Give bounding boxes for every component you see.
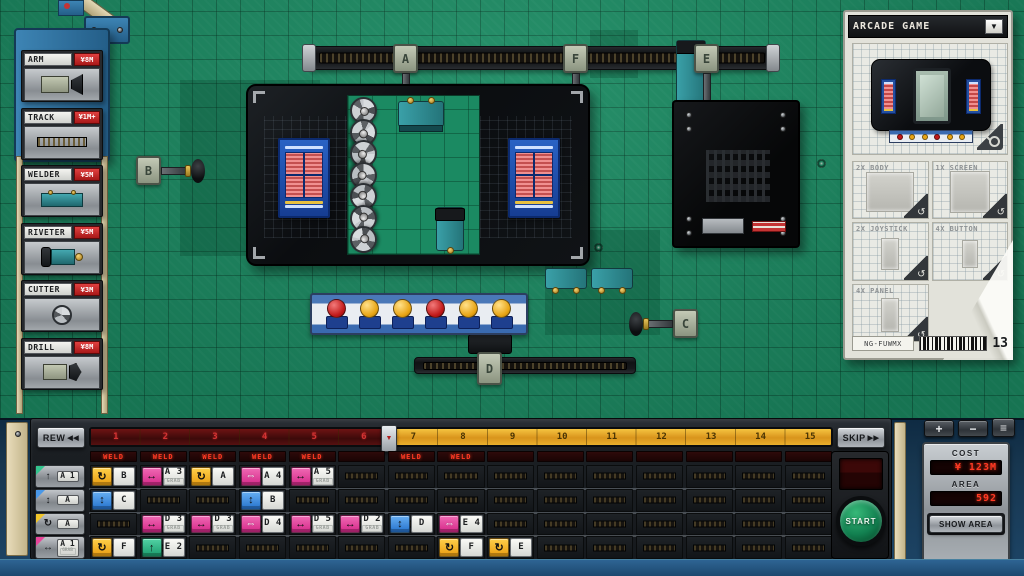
timeline-tick-15: 15 [805,432,816,442]
program-block-e2[interactable]: ↑E 2 [141,537,186,558]
program-cell-r1c1[interactable]: ↻B [90,465,137,488]
weld-indicator-row: WELDWELDWELDWELDWELDWELDWELD [89,451,833,462]
part-price-tag: ¥5M [74,226,100,239]
crane-light [64,3,70,9]
program-block-f[interactable]: ↻F [438,537,483,558]
start-label: START [845,517,876,526]
palette-item-header: RIVETER¥5M [24,226,100,239]
block-target-label: F [460,538,482,557]
cell-track-texture [345,497,378,504]
program-cell-r1c12[interactable] [636,465,683,488]
palette-item-welder[interactable]: WELDER¥5M [21,165,103,217]
node-d-label: D [477,352,502,385]
palette-item-header: DRILL¥8M [24,341,100,354]
program-cell-r4c15[interactable] [785,536,832,559]
start-module: START [831,451,889,559]
cell-track-texture [395,497,428,504]
cell-track-texture [296,544,329,551]
machine-node-b[interactable]: B [136,155,210,187]
block-target-label: E 4 [460,515,482,534]
program-cell-r1c11[interactable] [586,465,633,488]
program-cell-r4c4[interactable] [239,536,286,559]
cell-track-texture [544,544,577,551]
program-row-header-2[interactable]: ↕A [35,489,85,512]
weld-indicator-lit: WELD [388,451,435,462]
menu-icon: ≡ [1000,421,1007,435]
program-cell-r3c2[interactable]: ↔D 3GRAB [140,513,187,536]
part-price-tag: ¥8M [74,53,100,66]
product-dropdown-button[interactable]: ▼ [985,19,1003,34]
conveyor-track-bottom[interactable] [414,357,636,374]
magnifier-icon[interactable] [977,124,1003,150]
block-target-label: D 3GRAB [212,515,234,534]
program-block-e4[interactable]: ⇔E 4 [438,514,483,535]
program-cell-r4c8[interactable]: ↻F [437,536,484,559]
program-cell-r1c2[interactable]: ↔A 3GRAB [140,465,187,488]
program-block-f[interactable]: ↻F [91,537,136,558]
program-block-d[interactable]: ↕D [389,514,434,535]
program-cell-r4c13[interactable] [686,536,733,559]
program-cell-r2c2[interactable] [140,489,187,512]
program-row-header-3[interactable]: ↻A [35,513,85,536]
program-cell-r2c11[interactable] [586,489,633,512]
area-label: AREA [924,480,1008,489]
weld-indicator-lit: WELD [140,451,187,462]
welded-part-bar[interactable] [591,268,633,289]
cell-track-texture [544,520,577,527]
timeline-tick-7: 7 [411,432,416,442]
node-c-label: C [673,309,698,338]
product-count: 13 [992,336,1008,351]
program-block-d3[interactable]: ↔D 3GRAB [141,514,186,535]
arm-thumbnail [24,68,100,101]
cell-track-texture [196,544,229,551]
program-row-4: ↻F↑E 2↻F↻E [89,536,833,559]
block-target-label: A 4 [262,467,284,486]
program-cell-r3c12[interactable] [636,513,683,536]
cutter-thumbnail [24,298,100,331]
weld-indicator-slot [537,451,584,462]
program-cell-r2c13[interactable] [686,489,733,512]
node-f-label: F [563,44,588,73]
console-side-rail [894,422,906,562]
start-button[interactable]: START [836,496,886,546]
lift-action-icon: ↑ [142,538,162,557]
cell-track-texture [693,473,726,480]
part-name-label: CUTTER [24,283,72,296]
program-row-headers: ↑A 1↕A↻A↔A 1GRAB [35,465,85,559]
playhead-icon: ▼ [386,435,393,442]
status-led-display [839,458,883,490]
drill-thumbnail [24,356,100,389]
program-cell-r1c5[interactable]: ↔A 5GRAB [289,465,336,488]
cost-value: ¥ 123M [930,460,1002,475]
rewind-button[interactable]: REW ◀◀ [37,427,85,448]
program-cell-r2c4[interactable]: ↕B [239,489,286,512]
cell-track-texture [593,497,626,504]
machine-node-d[interactable]: D [477,350,503,388]
program-cell-r3c11[interactable] [586,513,633,536]
program-cell-r4c9[interactable]: ↻E [487,536,534,559]
track-end-cap [766,44,780,72]
menu-button[interactable]: ≡ [992,418,1015,437]
cell-track-texture [494,497,527,504]
timeline-tick-1: 1 [113,432,118,442]
program-cell-r2c14[interactable] [735,489,782,512]
block-target-label: D 5GRAB [312,515,334,534]
minus-icon: − [969,422,976,436]
program-cell-r3c15[interactable] [785,513,832,536]
machine-node-c[interactable]: C [624,308,698,340]
cell-track-texture [792,544,825,551]
button-cap [327,299,346,318]
part-requirement-label: 2X BODY [856,164,889,172]
zoom-in-button[interactable]: + [924,420,954,437]
program-cell-r2c3[interactable] [189,489,236,512]
program-cell-r1c7[interactable] [388,465,435,488]
cost-pod: + − ≡ COST ¥ 123M AREA 592 SHOW AREA [916,418,1016,570]
part-requirement-2[interactable]: 1X SCREEN↺ [932,161,1009,219]
skip-button[interactable]: SKIP ▶▶ [837,427,885,448]
grab-action-icon: ↔ [291,467,311,486]
program-cell-r1c14[interactable] [735,465,782,488]
skip-label: SKIP [843,433,866,443]
node-a-label: A [393,44,418,73]
grab-action-icon: ↔ [191,515,211,534]
swap-part-button[interactable]: ↺ [904,194,928,218]
cell-track-texture [494,520,527,527]
machine-warning-label [752,221,786,232]
program-row-3: ↔D 3GRAB↔D 3GRAB⇔D 4↔D 5GRAB↔D 2GRAB↕D⇔E… [89,513,833,536]
product-header: ARCADE GAME ▼ [848,15,1008,38]
timeline-tick-3: 3 [212,432,217,442]
swap-part-icon: ↺ [917,207,925,218]
palette-item-header: CUTTER¥3M [24,283,100,296]
program-block-a[interactable]: ↻A [190,466,235,487]
weld-indicator-lit: WELD [90,451,137,462]
move-action-icon: ⇔ [241,467,261,486]
game-screen: A F E B [0,0,1024,576]
program-cell-r3c5[interactable]: ↔D 5GRAB [289,513,336,536]
program-cell-r4c12[interactable] [636,536,683,559]
vertical-action-icon: ↕ [241,491,261,510]
weld-indicator-slot [338,451,385,462]
part-requirement-1[interactable]: 2X BODY↺ [852,161,929,219]
welder-thumbnail [24,183,100,216]
block-target-label: A [212,467,234,486]
program-cell-r3c10[interactable] [537,513,584,536]
block-target-label: C [113,491,135,510]
part-ghost-image [881,238,899,270]
program-block-d2[interactable]: ↔D 2GRAB [339,514,384,535]
button-cap [459,299,478,318]
program-cell-r1c9[interactable] [487,465,534,488]
part-ghost-image [881,298,899,332]
barcode [919,336,987,351]
program-block-a4[interactable]: ⇔A 4 [240,466,285,487]
program-cell-r2c5[interactable] [289,489,336,512]
weld-indicator-slot [735,451,782,462]
program-cell-r1c8[interactable] [437,465,484,488]
block-target-label: B [262,491,284,510]
cell-track-texture [593,520,626,527]
program-cell-r1c15[interactable] [785,465,832,488]
cell-track-texture [792,473,825,480]
vertical-action-icon: ↕ [92,491,112,510]
row-header-label: A 1 [57,471,79,481]
swap-part-button[interactable]: ↺ [904,256,928,280]
program-row-1: ↻B↔A 3GRAB↻A⇔A 4↔A 5GRAB [89,465,833,488]
grab-action-icon: ↔ [142,515,162,534]
rotate-action-icon: ↻ [191,467,211,486]
program-cell-r2c7[interactable] [388,489,435,512]
welded-part-bar[interactable] [545,268,587,289]
program-cell-r4c2[interactable]: ↑E 2 [140,536,187,559]
program-block-a5[interactable]: ↔A 5GRAB [290,466,335,487]
palette-item-header: ARM¥8M [24,53,100,66]
rewind-icon: ◀◀ [67,434,79,442]
program-block-b[interactable]: ↕B [240,490,285,511]
program-cell-r2c12[interactable] [636,489,683,512]
weld-indicator-lit: WELD [437,451,484,462]
blueprint-sheet-left [278,138,330,218]
block-target-label: D 3GRAB [163,515,185,534]
program-cell-r3c7[interactable]: ↕D [388,513,435,536]
program-cell-r4c10[interactable] [537,536,584,559]
cell-track-texture [494,473,527,480]
program-block-d5[interactable]: ↔D 5GRAB [290,514,335,535]
grab-sub-label: GRAB [213,525,233,532]
part-requirement-label: 2X JOYSTICK [856,225,908,233]
program-cell-r1c3[interactable]: ↻A [189,465,236,488]
palette-item-drill[interactable]: DRILL¥8M [21,338,103,390]
weld-indicator-lit: WELD [289,451,336,462]
program-cell-r2c8[interactable] [437,489,484,512]
button-cap [393,299,412,318]
program-cell-r1c13[interactable] [686,465,733,488]
weld-indicator-lit: WELD [189,451,236,462]
program-cell-r3c4[interactable]: ⇔D 4 [239,513,286,536]
welder-machine-center[interactable] [398,101,444,127]
cell-track-texture [792,520,825,527]
yellow-arcade-button[interactable] [391,299,415,329]
program-cell-r4c7[interactable] [388,536,435,559]
rotate-action-icon: ↻ [92,467,112,486]
program-block-c[interactable]: ↕C [91,490,136,511]
part-price-tag: ¥8M [74,341,100,354]
red-arcade-button[interactable] [325,299,349,329]
product-panel: ARCADE GAME ▼ 2X BODY↺1X SCREEN↺2X JOYST… [843,10,1013,360]
vent-grille [706,150,770,202]
part-name-label: WELDER [24,168,72,181]
block-target-label: B [113,467,135,486]
rotate-action-icon: ↻ [92,538,112,557]
part-ghost-image [962,240,978,268]
program-grid: ↻B↔A 3GRAB↻A⇔A 4↔A 5GRAB↕C↕B↔D 3GRAB↔D 3… [89,465,833,559]
program-cell-r1c10[interactable] [537,465,584,488]
program-cell-r3c9[interactable] [487,513,534,536]
blueprint-sheet-right [508,138,560,218]
part-name-label: DRILL [24,341,72,354]
grab-sub-label: GRAB [313,478,333,485]
timeline-tick-13: 13 [706,432,717,442]
weld-indicator-slot [636,451,683,462]
product-blueprint-image [871,59,991,131]
timeline-tick-6: 6 [361,432,366,442]
program-block-e[interactable]: ↻E [488,537,533,558]
cell-track-texture [147,497,180,504]
yellow-arcade-button[interactable] [490,299,514,329]
cutter-wheel-column[interactable] [350,97,380,253]
swap-part-icon: ↺ [917,269,925,280]
cost-label: COST [924,449,1008,458]
timeline-tick-5: 5 [311,432,316,442]
program-cell-r3c6[interactable]: ↔D 2GRAB [338,513,385,536]
timeline-tick-2: 2 [163,432,168,442]
block-target-label: F [113,538,135,557]
cell-track-texture [693,497,726,504]
part-requirement-label: 4X PANEL [856,287,894,295]
drill-machine-center[interactable] [436,207,464,251]
program-block-d3[interactable]: ↔D 3GRAB [190,514,235,535]
cell-track-texture [643,544,676,551]
palette-item-track[interactable]: TRACK¥1M+ [21,108,103,160]
palette-item-cutter[interactable]: CUTTER¥3M [21,280,103,332]
weld-indicator-slot [487,451,534,462]
riveter-thumbnail [24,241,100,274]
part-price-tag: ¥3M [74,283,100,296]
cell-track-texture [693,520,726,527]
palette-item-header: TRACK¥1M+ [24,111,100,124]
grab-sub-label: GRAB [362,525,382,532]
program-cell-r3c1[interactable] [90,513,137,536]
grab-action-icon: ↔ [291,515,311,534]
cell-track-texture [544,473,577,480]
assembled-button-panel[interactable] [310,293,528,335]
program-block-b[interactable]: ↻B [91,466,136,487]
timeline-ruler[interactable]: 123456789101112131415 ▼ [89,427,833,447]
move-action-icon: ⇔ [439,515,459,534]
program-cell-r2c6[interactable] [338,489,385,512]
timeline-playhead[interactable]: ▼ [381,425,397,452]
program-cell-r4c11[interactable] [586,536,633,559]
program-block-d4[interactable]: ⇔D 4 [240,514,285,535]
program-block-a3[interactable]: ↔A 3GRAB [141,466,186,487]
palette-item-riveter[interactable]: RIVETER¥5M [21,223,103,275]
program-cell-r2c15[interactable] [785,489,832,512]
track-end-cap [302,44,316,72]
timeline-tick-10: 10 [557,432,568,442]
grab-sub-label: GRAB [313,525,333,532]
skip-icon: ▶▶ [868,434,880,442]
grab-sub-label: GRAB [164,478,184,485]
program-cell-r1c4[interactable]: ⇔A 4 [239,465,286,488]
program-console: REW ◀◀ SKIP ▶▶ 123456789101112131415 ▼ W… [0,418,1024,576]
node-e-label: E [694,44,719,73]
rotate-action-icon: ↻ [439,538,459,557]
program-cell-r3c3[interactable]: ↔D 3GRAB [189,513,236,536]
cell-track-texture [693,544,726,551]
product-title: ARCADE GAME [853,21,930,32]
cell-track-texture [544,497,577,504]
yellow-arcade-button[interactable] [457,299,481,329]
timeline-tick-4: 4 [262,432,267,442]
program-cell-r3c8[interactable]: ⇔E 4 [437,513,484,536]
cell-track-texture [643,497,676,504]
cell-track-texture [643,473,676,480]
product-preview[interactable] [852,43,1008,155]
crane-mount [58,0,84,16]
palette-item-arm[interactable]: ARM¥8M [21,50,103,102]
cell-track-texture [246,544,279,551]
part-name-label: RIVETER [24,226,72,239]
part-price-tag: ¥5M [74,168,100,181]
program-cell-r2c9[interactable] [487,489,534,512]
show-area-button[interactable]: SHOW AREA [929,515,1003,533]
row-header-label: A [57,495,79,505]
program-cell-r4c5[interactable] [289,536,336,559]
grab-action-icon: ↔ [340,515,360,534]
zoom-out-button[interactable]: − [958,420,988,437]
part-name-label: TRACK [24,111,72,124]
cell-track-texture [97,520,130,527]
program-cell-r4c1[interactable]: ↻F [90,536,137,559]
node-b-label: B [136,156,161,185]
cell-track-texture [345,544,378,551]
timeline-tick-14: 14 [755,432,766,442]
plus-icon: + [935,422,942,436]
program-cell-r2c1[interactable]: ↕C [90,489,137,512]
part-price-tag: ¥1M+ [74,111,100,124]
red-arcade-button[interactable] [424,299,448,329]
cell-track-texture [593,544,626,551]
program-cell-r1c6[interactable] [338,465,385,488]
row-header-label: A [57,519,79,529]
weld-indicator-slot [686,451,733,462]
program-cell-r3c13[interactable] [686,513,733,536]
vent-machine[interactable] [672,100,800,248]
grab-action-icon: ↔ [142,467,162,486]
program-cell-r4c6[interactable] [338,536,385,559]
cost-panel: COST ¥ 123M AREA 592 SHOW AREA [922,442,1010,566]
program-cell-r4c3[interactable] [189,536,236,559]
cell-track-texture [742,497,775,504]
program-cell-r3c14[interactable] [735,513,782,536]
yellow-arcade-button[interactable] [358,299,382,329]
timeline-tick-8: 8 [460,432,465,442]
cell-track-texture [792,497,825,504]
move-action-icon: ⇔ [241,515,261,534]
swap-part-icon: ↺ [997,207,1005,218]
program-row-header-1[interactable]: ↑A 1 [35,465,85,488]
weld-indicator-lit: WELD [239,451,286,462]
swap-part-button[interactable]: ↺ [983,194,1007,218]
cell-track-texture [742,544,775,551]
program-cell-r2c10[interactable] [537,489,584,512]
weld-indicator-slot [785,451,832,462]
program-row-header-4[interactable]: ↔A 1GRAB [35,536,85,559]
product-code: NG-FUWMX [852,336,914,351]
cutter-wheel [347,223,379,255]
part-requirement-label: 4X BUTTON [936,225,978,233]
part-requirement-3[interactable]: 2X JOYSTICK↺ [852,222,929,280]
block-target-label: D 4 [262,515,284,534]
rotate-action-icon: ↻ [489,538,509,557]
grab-sub-label: GRAB [60,548,76,555]
weld-indicator-slot [586,451,633,462]
program-cell-r4c14[interactable] [735,536,782,559]
cell-track-texture [742,473,775,480]
